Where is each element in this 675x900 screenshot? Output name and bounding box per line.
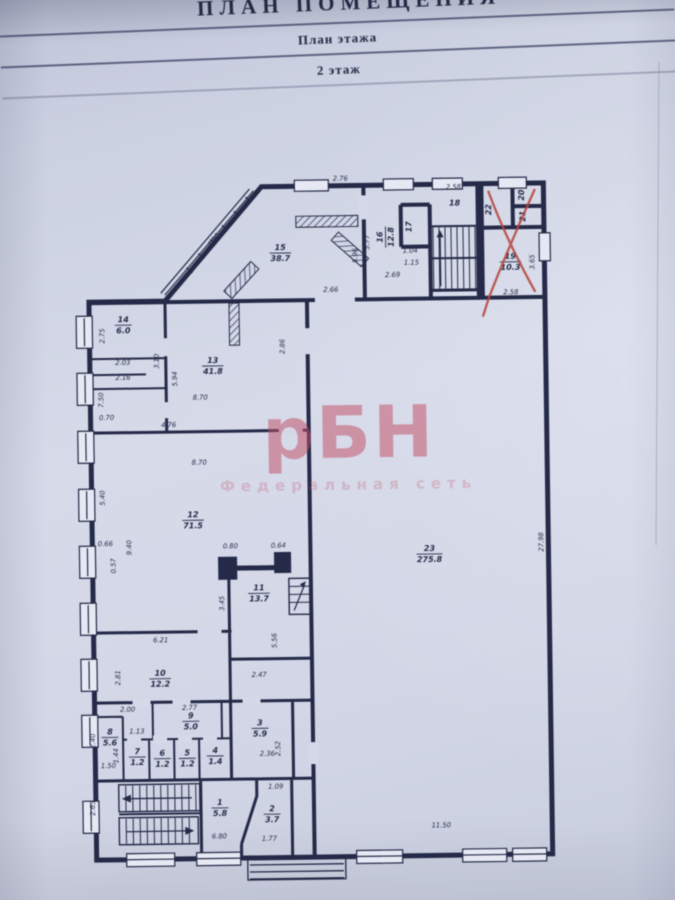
- dimension-label: 6.21: [153, 636, 168, 644]
- dimension-label: 2.76: [333, 175, 349, 183]
- dimension-label: 7.50: [97, 392, 105, 407]
- room-label: 1012.2: [149, 669, 171, 689]
- room-label: 15.8: [211, 798, 228, 818]
- dimension-label: 2.58: [446, 183, 462, 191]
- room-area: 5.8: [213, 809, 228, 818]
- dimension-label: 1.04: [403, 247, 418, 255]
- room-number: 2: [269, 804, 275, 813]
- ventilation-shafts: [223, 215, 370, 345]
- dimension-label: 5.94: [171, 371, 179, 386]
- dimension-label: 5.96: [351, 247, 359, 263]
- dimension-label: 9.40: [125, 540, 133, 555]
- room-number: 4: [211, 746, 218, 755]
- dimension-label: 2.86: [278, 338, 286, 354]
- room-label: 23275.8: [416, 544, 442, 564]
- room-number: 20: [517, 189, 526, 201]
- dimension-label: 2.47: [252, 671, 268, 679]
- room-label: 22: [484, 204, 493, 216]
- dimension-label: 0.70: [99, 414, 114, 422]
- room-area: 1.2: [180, 759, 195, 768]
- room-label: 18: [449, 199, 461, 208]
- dimension-label: 3.65: [528, 254, 536, 269]
- dimension-label: 8.70: [193, 394, 208, 402]
- dimension-label: 0.80: [223, 542, 238, 550]
- dimension-label: 2.69: [385, 271, 400, 279]
- room-number: 22: [484, 204, 493, 216]
- dimension-label: 0.66: [98, 540, 114, 548]
- room-area: 38.7: [270, 254, 290, 263]
- dimension-label: 2.40: [89, 734, 97, 749]
- room-label: 41.4: [207, 746, 224, 766]
- dimension-label: 2.81: [114, 670, 122, 685]
- room-area: 12.8: [386, 227, 395, 247]
- room-label: 61.2: [154, 749, 171, 769]
- dimension-label: 27.98: [537, 531, 545, 551]
- dimension-label: 2.03: [115, 359, 130, 367]
- room-number: 18: [449, 199, 461, 208]
- room-number: 15: [275, 243, 287, 252]
- room-area: 1.2: [130, 758, 145, 767]
- room-label: 35.9: [251, 718, 268, 738]
- room-label: 85.6: [101, 727, 118, 747]
- stairs-bottom: [119, 784, 201, 845]
- dimension-label: 2.66: [323, 286, 339, 294]
- dimension-label: 2.75: [98, 328, 106, 343]
- room-label: 1538.7: [269, 243, 291, 263]
- dimension-label: 6.80: [212, 832, 227, 840]
- room-label: 17: [404, 221, 413, 233]
- room-number: 6: [159, 749, 165, 758]
- dimension-label: 1.77: [262, 835, 278, 843]
- room-number: 1: [217, 798, 223, 807]
- dimension-label: 1.09: [268, 783, 283, 791]
- room-number: 17: [404, 221, 413, 233]
- stairs-small: [289, 578, 312, 614]
- room-number: 7: [134, 747, 140, 756]
- room-label: 51.2: [179, 748, 196, 768]
- room-label: 23.7: [264, 804, 281, 824]
- room-number: 5: [184, 748, 190, 757]
- room-area: 12.2: [150, 680, 170, 689]
- room-number: 14: [118, 315, 130, 324]
- watermark-tagline: Федеральная сеть: [220, 474, 477, 496]
- dimension-label: 5.40: [99, 490, 107, 505]
- dimension-label: 2.77: [182, 704, 198, 712]
- dimension-label: 2.36: [260, 750, 276, 758]
- room-number: 3: [257, 718, 263, 727]
- watermark: рБН Федеральная сеть: [219, 389, 478, 496]
- dimension-label: 1.13: [129, 727, 144, 735]
- dimension-label: 3.45: [218, 596, 226, 611]
- room-area: 13.7: [249, 594, 269, 603]
- watermark-logo: рБН: [262, 389, 436, 475]
- room-number: 12: [187, 510, 199, 519]
- room-area: 3.7: [265, 815, 280, 824]
- room-label: 146.0: [115, 315, 132, 335]
- room-area: 6.0: [116, 326, 131, 335]
- room-number: 9: [188, 711, 194, 720]
- room-area: 1.4: [208, 757, 223, 766]
- room-label: 1341.8: [202, 356, 224, 376]
- room-area: 5.0: [184, 722, 199, 731]
- room-label: 20: [517, 189, 526, 201]
- dimension-label: 2.63: [89, 801, 97, 816]
- room-label: 1612.8: [375, 226, 395, 248]
- dimension-label: 2.52: [274, 741, 282, 756]
- room-area: 5.9: [253, 729, 268, 738]
- dimension-label: 1.15: [404, 259, 419, 267]
- dimension-label: 0.64: [271, 541, 286, 549]
- room-label: 95.0: [182, 711, 199, 731]
- room-area: 275.8: [417, 555, 443, 564]
- room-area: 1.2: [155, 760, 170, 769]
- dimension-label: 3.10: [153, 354, 161, 369]
- room-label: 71.2: [129, 747, 146, 767]
- room-label: 1271.5: [182, 510, 204, 530]
- room-label: 1113.7: [248, 583, 270, 603]
- room-area: 71.5: [183, 521, 203, 530]
- dimension-label: 1.50: [101, 762, 116, 770]
- room-number: 16: [375, 231, 384, 243]
- dimension-label: 2.16: [115, 374, 131, 382]
- photographed-floor-plan-document: ПЛАН ПОМЕЩЕНИЯ План этажа 2 этаж: [0, 0, 675, 900]
- room-number: 13: [207, 356, 219, 365]
- dimension-label: 5.77: [363, 234, 371, 250]
- room-number: 11: [253, 583, 264, 592]
- room-area: 5.6: [103, 738, 118, 747]
- room-number: 10: [154, 669, 166, 678]
- dimension-label: 5.56: [271, 632, 279, 648]
- dimension-label: 2.58: [503, 288, 519, 296]
- dimension-label: 4.76: [161, 421, 177, 429]
- room-number: 23: [424, 544, 436, 553]
- floor-plan-drawing: 15.823.735.941.451.261.271.285.695.01012…: [0, 0, 675, 900]
- dimension-label: 11.50: [431, 821, 451, 829]
- dimension-label: 0.57: [110, 558, 118, 574]
- room-area: 41.8: [202, 367, 223, 376]
- dimension-label: 8.70: [192, 459, 207, 467]
- room-number: 8: [107, 727, 113, 736]
- dimension-label: 2.00: [120, 706, 135, 714]
- page-edge-line: [656, 62, 659, 545]
